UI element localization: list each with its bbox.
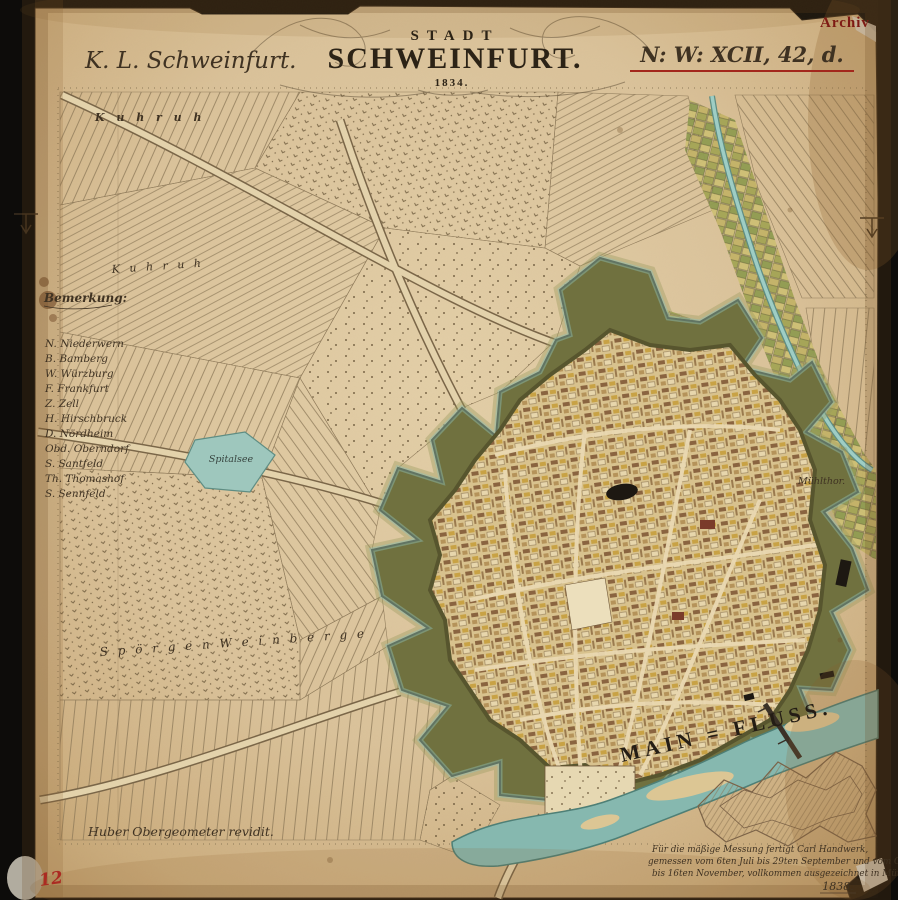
lake-label: Spitalsee: [209, 454, 254, 465]
legend-item: Z. Zell: [44, 398, 79, 410]
legend-item: H. Hirschbruck: [44, 413, 127, 425]
surveyor-note: Huber Obergeometer revidit.: [87, 824, 274, 839]
catalog-reference: N: W: XCII, 42, d.: [639, 42, 843, 67]
scanned-map-photo: STADT SCHWEINFURT. 1834. K. L. Schweinfu…: [0, 0, 898, 900]
survey-note-line: gemessen vom 6ten Juli bis 29ten Septemb…: [648, 857, 898, 867]
legend-item: W. Würzburg: [45, 368, 114, 380]
survey-note-line: bis 16ten November, vollkommen ausgezeic…: [652, 869, 898, 879]
legend-item: D. Nördheim: [44, 428, 113, 440]
legend-item: F. Frankfurt: [44, 383, 110, 395]
survey-note-year: 1838.: [822, 880, 854, 893]
district-title: K. L. Schweinfurt.: [84, 48, 297, 74]
legend-item: N. Niederwern: [44, 338, 124, 350]
title-main: SCHWEINFURT.: [328, 42, 583, 75]
mill-gate-label: Mühlthor.: [797, 476, 845, 487]
legend-item: S. Santfeld: [45, 458, 103, 470]
legend-heading: Bemerkung:: [43, 291, 127, 305]
survey-note-line: Für die mäßige Messung fertigt Carl Hand…: [651, 845, 868, 855]
field-label-kuhruh: K u h r u h: [94, 111, 206, 124]
sheet-number: 12: [38, 868, 64, 891]
legend-item: B. Bamberg: [44, 353, 108, 365]
title-year: 1834.: [435, 77, 470, 89]
archive-stamp: Archiv: [820, 15, 870, 31]
legend-item: Obd. Oberndorf: [45, 443, 131, 455]
legend-item: Th. Thomashof: [45, 473, 126, 485]
legend-item: S. Sennfeld: [45, 488, 106, 500]
